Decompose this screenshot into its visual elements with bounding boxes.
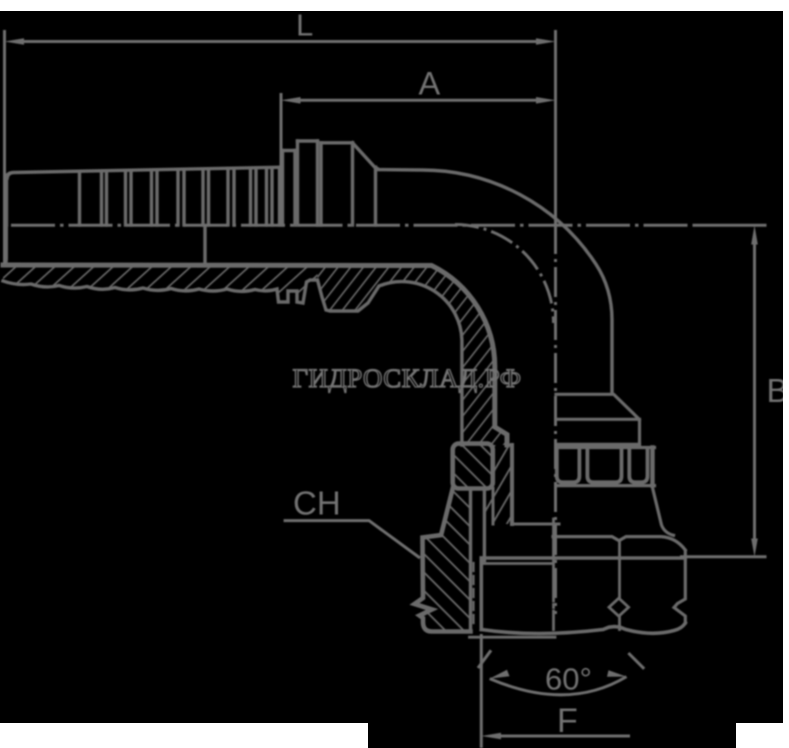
svg-text:A: A [419, 66, 441, 102]
svg-text:L: L [296, 8, 313, 43]
svg-text:F: F [557, 702, 578, 740]
svg-text:CH: CH [293, 485, 341, 522]
svg-text:60°: 60° [545, 662, 592, 697]
svg-text:ГИДРОСКЛАД.РФ: ГИДРОСКЛАД.РФ [293, 363, 522, 393]
